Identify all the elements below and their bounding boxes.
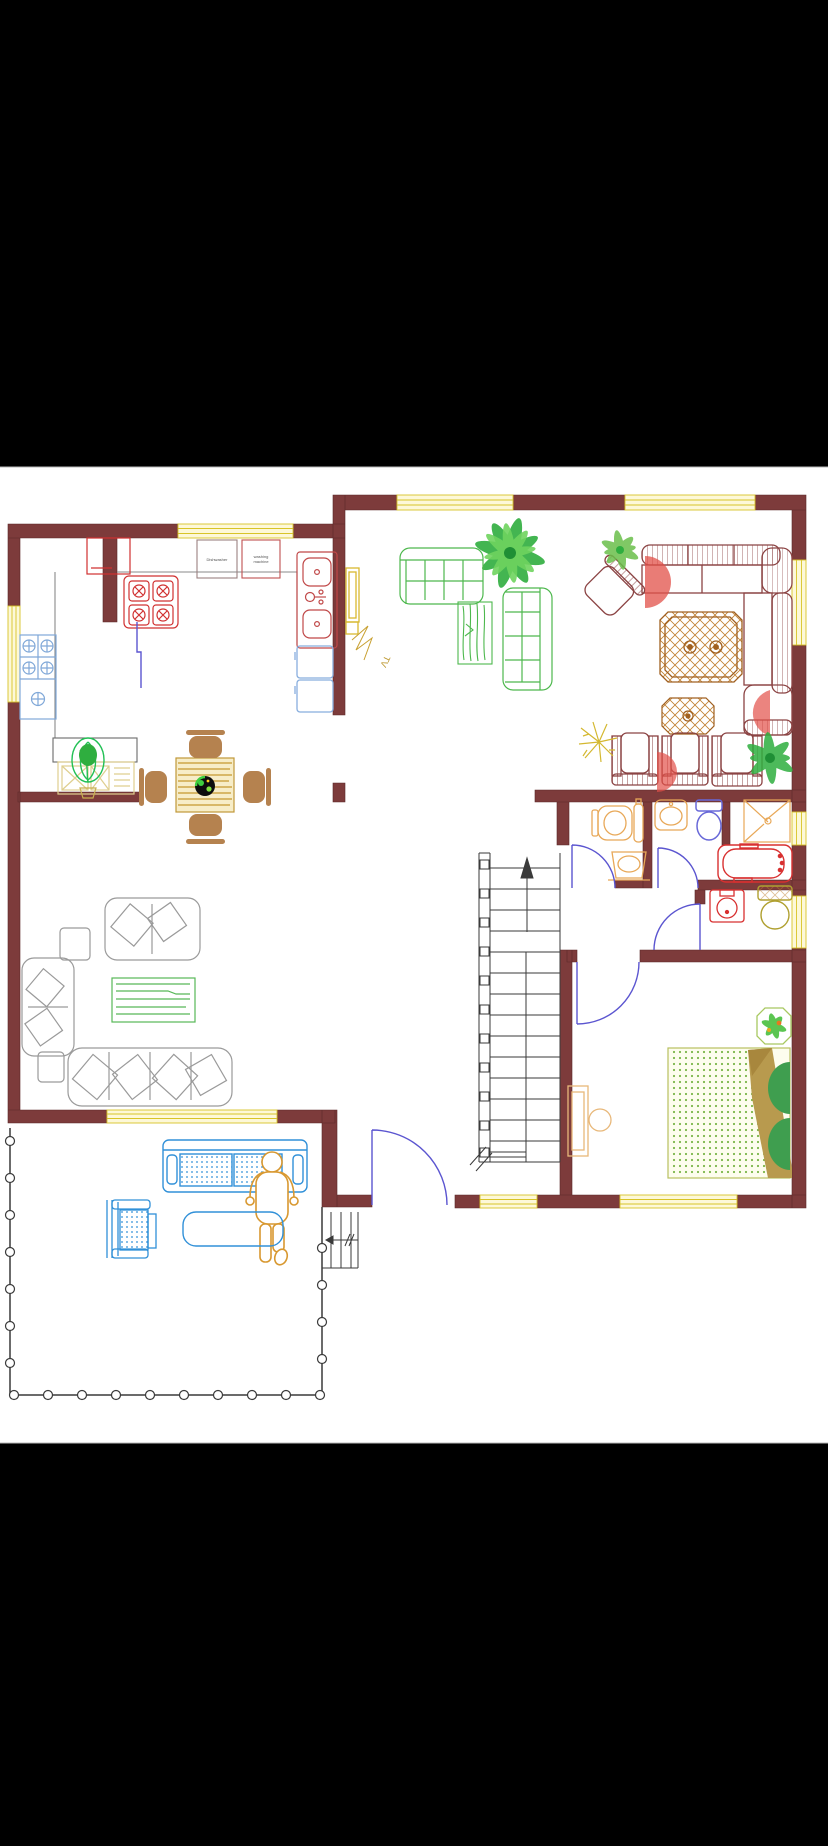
dining-table: [176, 758, 234, 812]
coffee-table-large: [660, 612, 742, 682]
washing-machine-label-2: machine: [253, 559, 269, 564]
bed: [668, 1048, 792, 1178]
floor-plan-image: Dishwasher washing machine: [0, 0, 828, 1846]
screen: Dishwasher washing machine: [0, 0, 828, 1846]
coffee-table-small: [662, 698, 714, 734]
table-centerpiece-plant: [195, 776, 215, 796]
dishwasher-label: Dishwasher: [207, 557, 229, 562]
